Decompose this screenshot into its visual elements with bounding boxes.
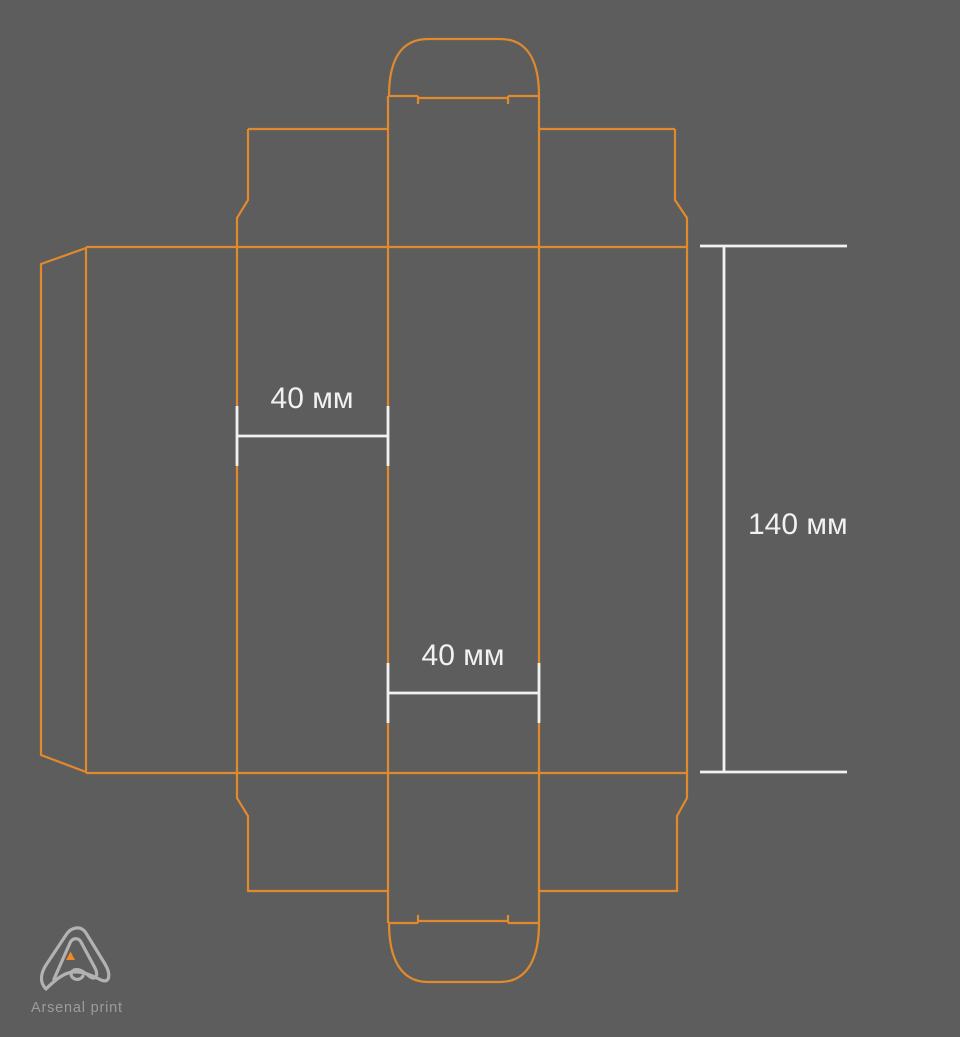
dimension-label-40mm-bottom: 40 мм xyxy=(422,639,505,672)
dieline-diagram: 40 мм 40 мм 140 мм Arsenal print xyxy=(0,0,960,1037)
dim-line xyxy=(388,663,539,723)
dimension-body-height: 140 мм xyxy=(700,246,848,772)
top-tuck-flap xyxy=(389,39,539,96)
logo-brand-text: Arsenal print xyxy=(31,1000,123,1016)
left-flap-and-fold-edge xyxy=(237,129,388,891)
dimension-flap-width-bottom: 40 мм xyxy=(388,639,539,723)
bottom-tuck-fold-notches xyxy=(389,915,539,923)
glue-tab-outline xyxy=(41,248,86,772)
top-tuck-fold-notches xyxy=(389,96,539,104)
logo-mark-triangle-icon xyxy=(41,928,108,989)
dimension-flap-width-top: 40 мм xyxy=(237,382,388,466)
dimension-label-140mm: 140 мм xyxy=(748,508,848,541)
dimension-label-40mm-top: 40 мм xyxy=(271,382,354,415)
screenshot-canvas: 40 мм 40 мм 140 мм Arsenal print xyxy=(0,0,960,1037)
bottom-tuck-flap xyxy=(389,923,539,982)
dim-line xyxy=(237,406,388,466)
brand-logo: Arsenal print xyxy=(31,928,123,1016)
box-dieline xyxy=(41,39,687,982)
right-flap-and-cut-edge xyxy=(540,129,687,891)
